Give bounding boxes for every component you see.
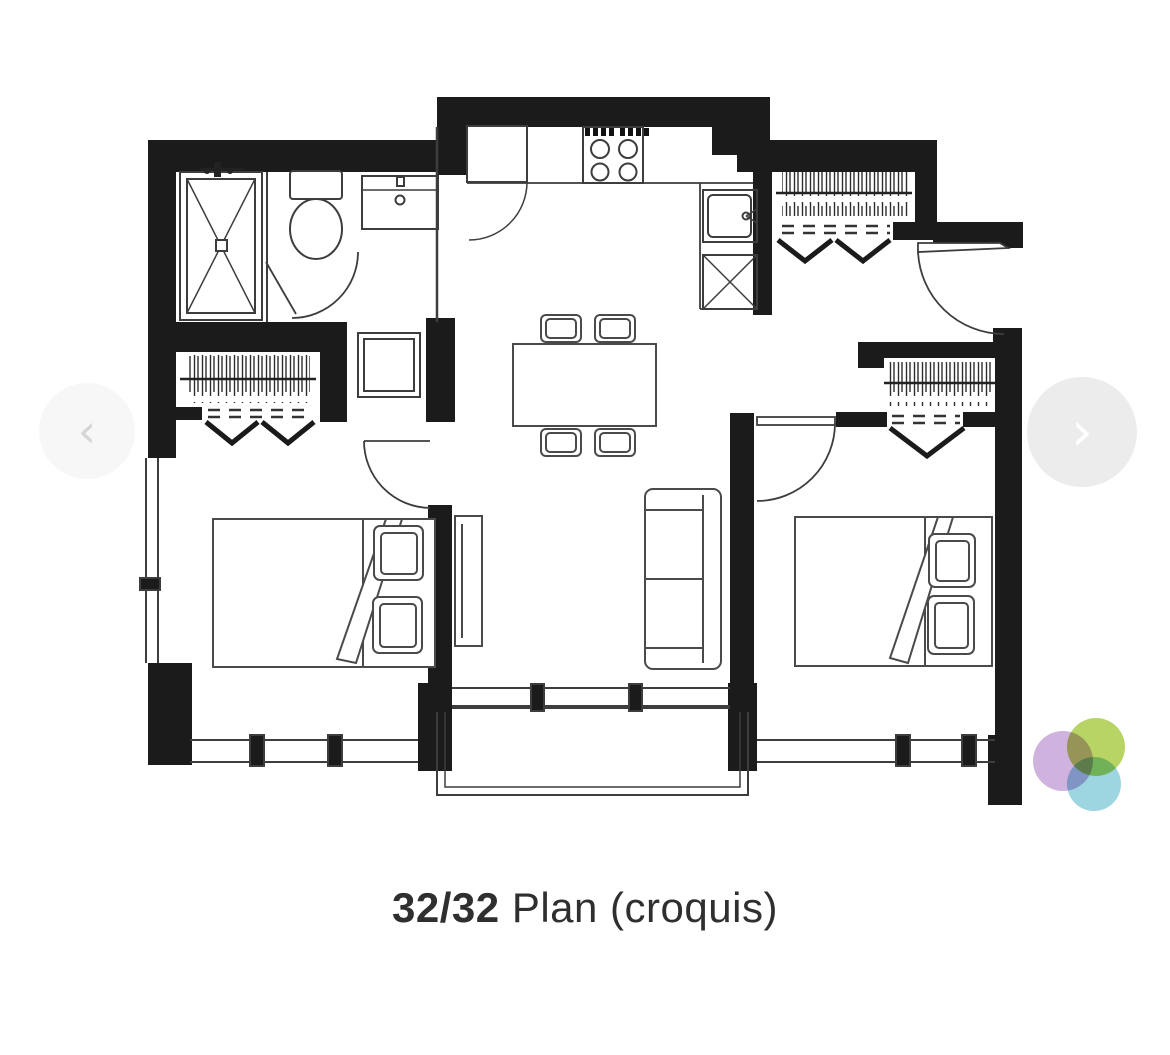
brand-circles-logo bbox=[1028, 702, 1143, 817]
chair bbox=[595, 429, 635, 456]
bed bbox=[213, 519, 435, 667]
window-bedroom-right bbox=[757, 735, 995, 766]
entry bbox=[918, 243, 1008, 334]
pillow bbox=[374, 526, 423, 580]
logo-circle-cyan bbox=[1067, 757, 1121, 811]
chair bbox=[541, 429, 581, 456]
counter-edge bbox=[467, 183, 753, 309]
chevron-right-icon: › bbox=[1071, 405, 1093, 459]
bedroom-left-door bbox=[364, 441, 430, 508]
tv-unit bbox=[455, 516, 482, 646]
window-left-wall bbox=[140, 458, 160, 663]
dining-table bbox=[513, 315, 656, 456]
pillow bbox=[373, 597, 422, 653]
carousel-next-button[interactable]: › bbox=[1027, 377, 1137, 487]
entry-door-leaf bbox=[918, 243, 1008, 252]
bedroom-left bbox=[213, 519, 435, 667]
bedroom-right-door bbox=[757, 417, 835, 501]
bedroom-right bbox=[795, 517, 992, 666]
sofa bbox=[645, 489, 721, 669]
image-caption: 32/32 Plan (croquis) bbox=[0, 884, 1170, 932]
bifold-door bbox=[890, 428, 964, 456]
image-carousel-viewer: ‹ › 32/32 Plan (croquis) bbox=[0, 0, 1170, 1055]
hall-cabinet bbox=[358, 333, 420, 397]
living-dining bbox=[455, 315, 721, 669]
kitchen-sink bbox=[703, 190, 757, 242]
bifold-doors bbox=[778, 240, 890, 261]
bathroom-door bbox=[266, 252, 358, 318]
shower bbox=[180, 172, 262, 320]
pillow bbox=[928, 596, 974, 654]
image-caption-label: Plan (croquis) bbox=[512, 884, 778, 931]
coat-closet bbox=[776, 172, 912, 261]
chair bbox=[595, 315, 635, 342]
window-living bbox=[452, 684, 730, 711]
entry-door-swing bbox=[918, 251, 1004, 334]
washer bbox=[703, 255, 757, 309]
chair bbox=[541, 315, 581, 342]
bed bbox=[795, 517, 992, 666]
pillow bbox=[929, 534, 975, 587]
image-counter: 32/32 bbox=[392, 884, 500, 931]
carousel-prev-button[interactable]: ‹ bbox=[39, 383, 135, 479]
toilet bbox=[290, 171, 342, 259]
balcony bbox=[437, 712, 748, 795]
fridge bbox=[467, 126, 527, 240]
closet-right bbox=[884, 362, 995, 456]
bifold-doors bbox=[206, 422, 314, 443]
chevron-left-icon: ‹ bbox=[78, 408, 96, 454]
bathroom-sink bbox=[362, 176, 438, 229]
window-bedroom-left bbox=[190, 735, 418, 766]
